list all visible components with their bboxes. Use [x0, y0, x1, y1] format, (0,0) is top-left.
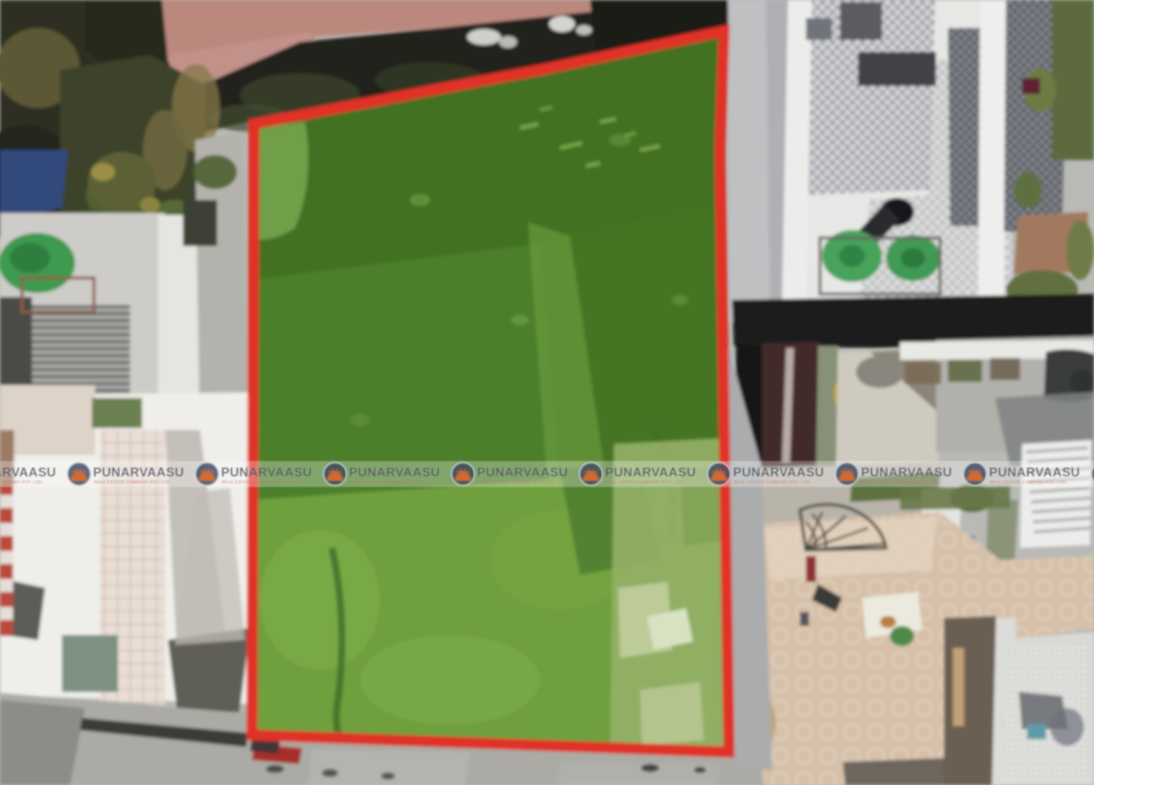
svg-text:REAL ESTATE COMPANY PVT. LTD.: REAL ESTATE COMPANY PVT. LTD. — [0, 480, 43, 485]
svg-text:PUNARVAASU: PUNARVAASU — [0, 465, 56, 480]
